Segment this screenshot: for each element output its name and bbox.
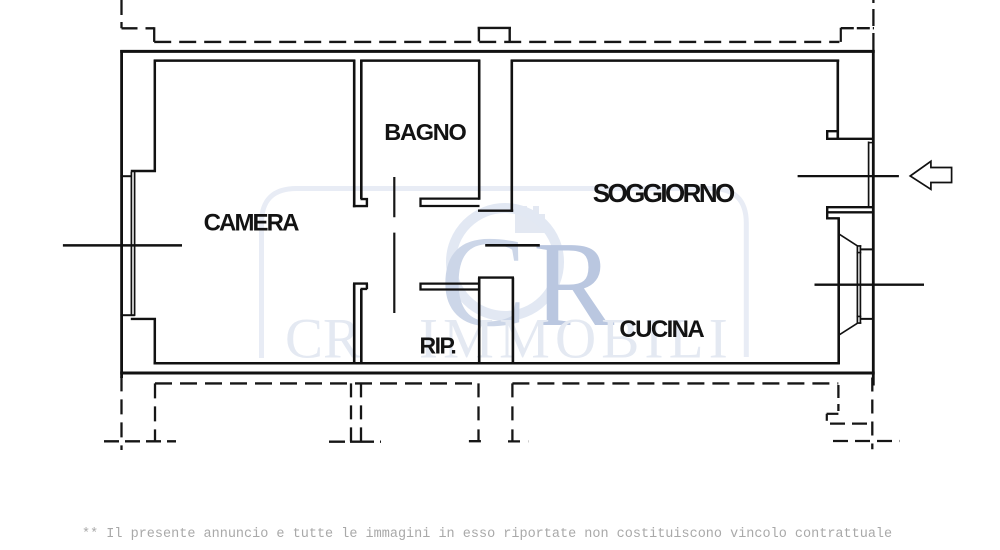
svg-text:BAGNO: BAGNO: [384, 119, 466, 145]
svg-text:** Il presente annuncio e tutt: ** Il presente annuncio e tutte le immag…: [82, 527, 892, 542]
svg-text:CR: CR: [285, 308, 361, 371]
svg-text:CUCINA: CUCINA: [619, 316, 704, 343]
svg-text:RIP.: RIP.: [420, 332, 456, 358]
svg-text:CAMERA: CAMERA: [204, 210, 299, 237]
svg-text:SOGGIORNO: SOGGIORNO: [593, 178, 735, 208]
